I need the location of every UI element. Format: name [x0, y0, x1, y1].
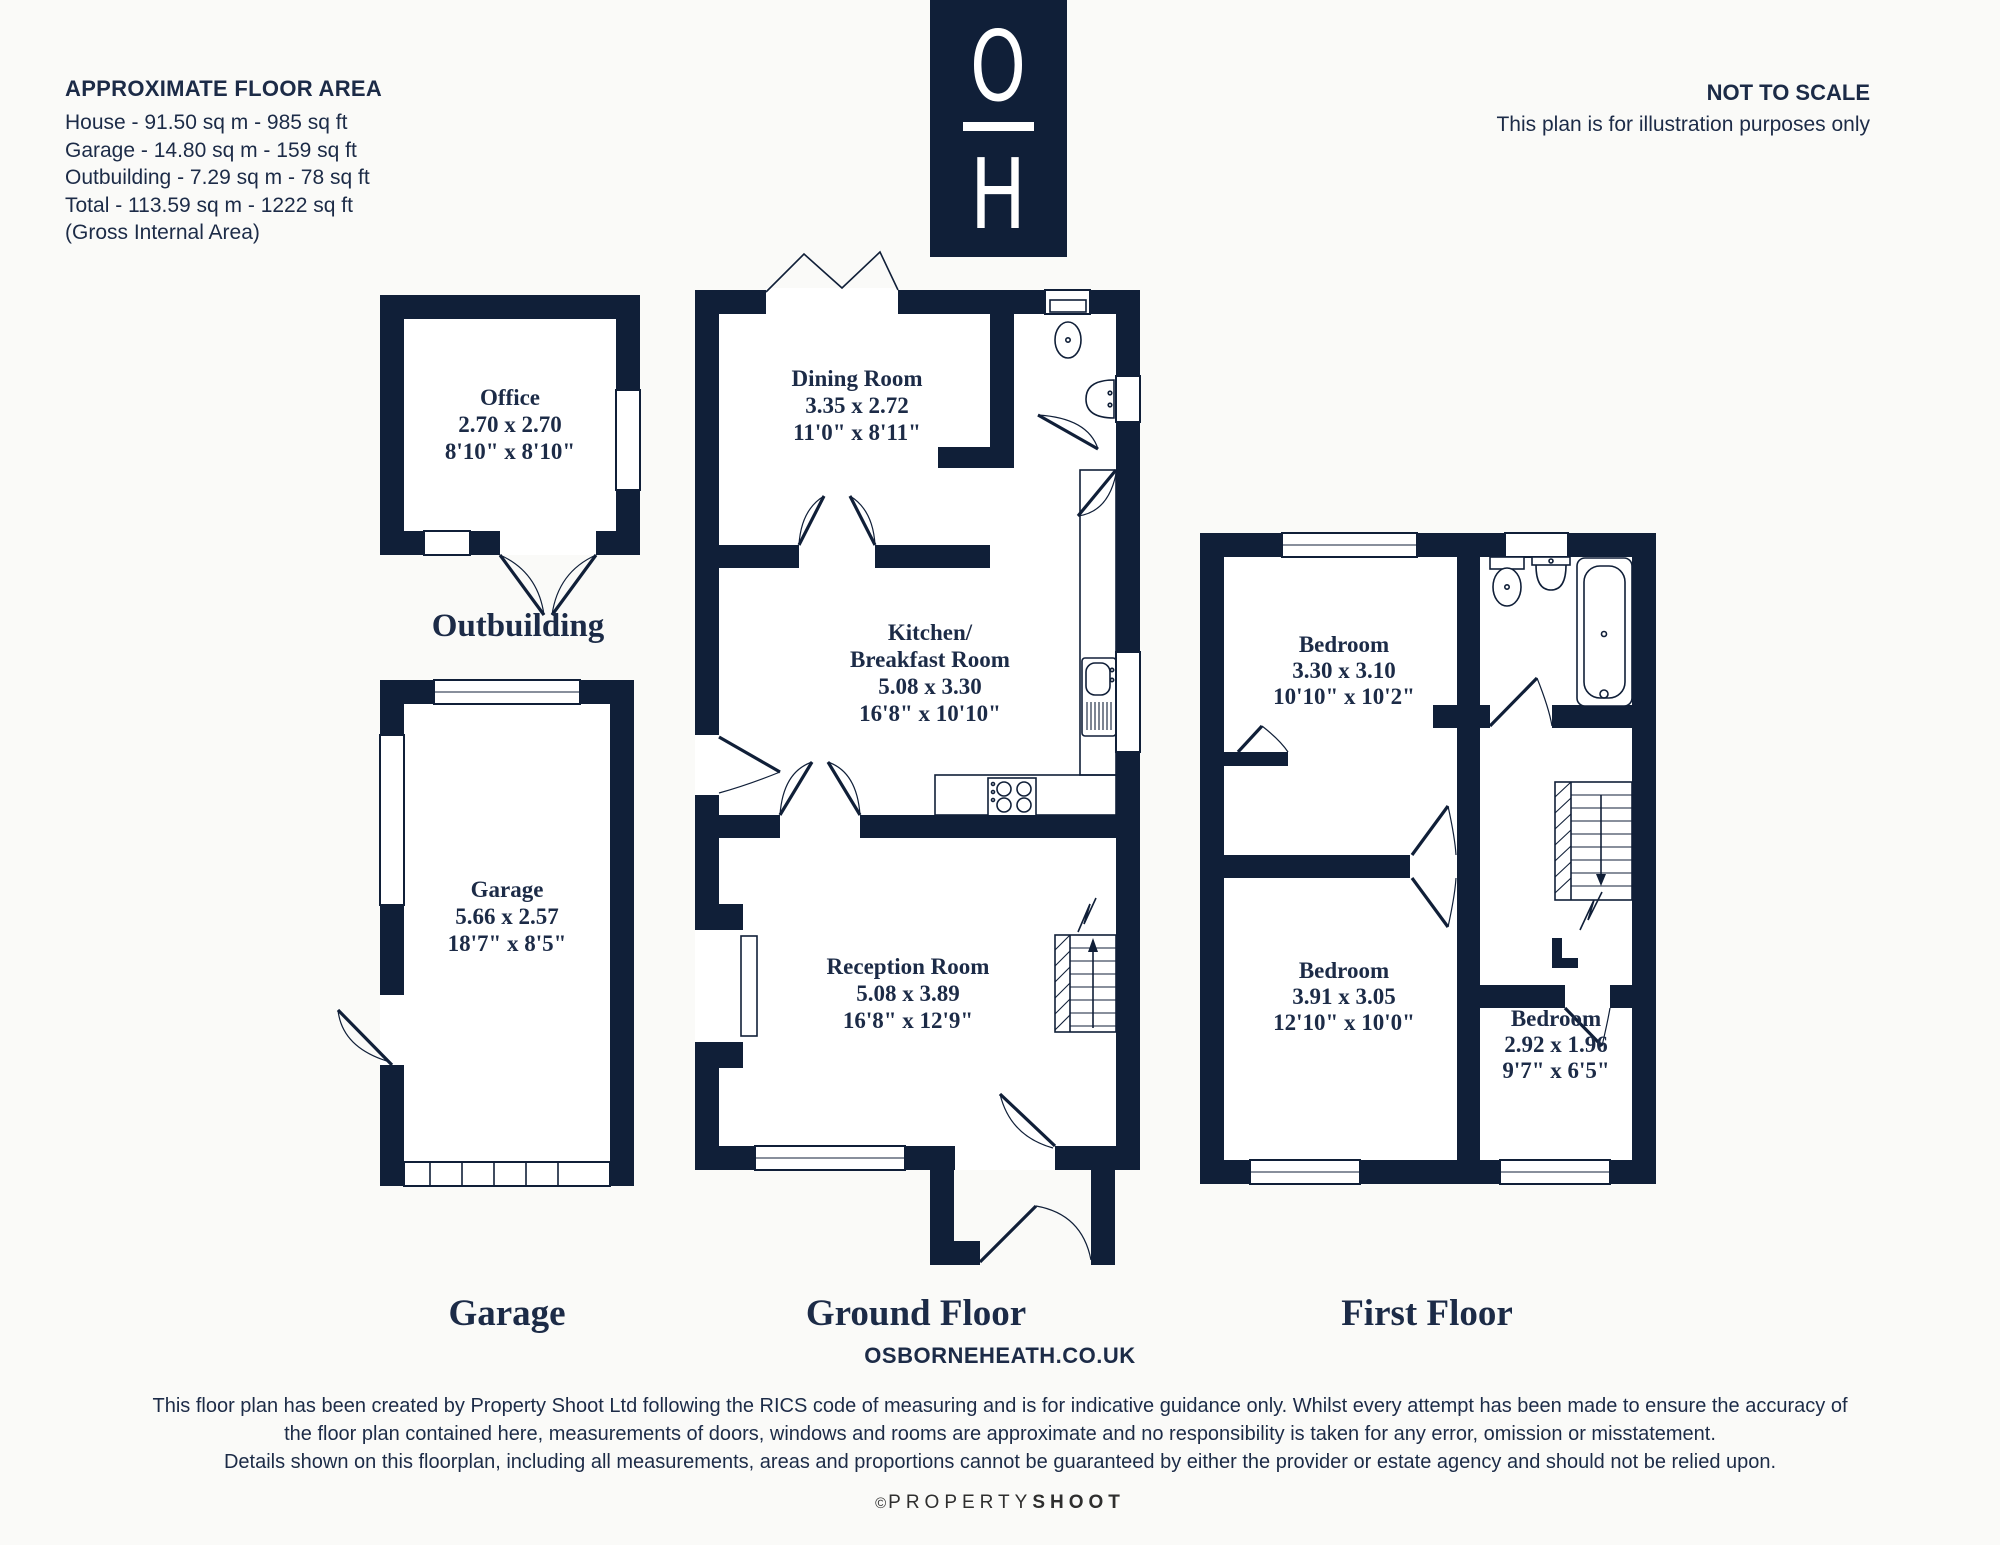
- kitchen-name1-label: Kitchen/: [888, 620, 973, 645]
- agency-logo-icon: O H: [930, 0, 1067, 257]
- dining-name-label: Dining Room: [792, 366, 923, 391]
- bathroom-toilet-icon: [1490, 557, 1524, 606]
- garage-door-icon: [404, 1162, 610, 1186]
- garage-plan: Garage 5.66 x 2.57 18'7" x 8'5" Garage: [338, 680, 634, 1334]
- office-imperial-label: 8'10" x 8'10": [445, 439, 575, 464]
- office-window-2: [424, 531, 470, 555]
- disclaimer-text: This floor plan has been created by Prop…: [0, 1392, 2000, 1476]
- dining-imperial-label: 11'0" x 8'11": [793, 420, 921, 445]
- ground-floor-plan: Dining Room 3.35 x 2.72 11'0" x 8'11" Ki…: [695, 252, 1140, 1368]
- garage-imperial-label: 18'7" x 8'5": [448, 931, 567, 956]
- wc-window-side: [1116, 376, 1140, 422]
- reception-name-label: Reception Room: [827, 954, 990, 979]
- garage-metric-label: 5.66 x 2.57: [455, 904, 559, 929]
- website-label: OSBORNEHEATH.CO.UK: [864, 1343, 1135, 1368]
- hob-icon: [988, 778, 1036, 816]
- office-french-doors-icon: [500, 555, 596, 615]
- logo-letter-h: H: [970, 138, 1026, 251]
- bedroom1-metric-label: 3.30 x 3.10: [1292, 658, 1396, 683]
- kitchen-name2-label: Breakfast Room: [850, 647, 1010, 672]
- bath-icon: [1577, 558, 1632, 706]
- floorplan-svg: O H Office 2.70 x 2.70 8'10" x 8'10" Out…: [0, 0, 2000, 1545]
- bedroom3-imperial-label: 9'7" x 6'5": [1502, 1058, 1609, 1083]
- outbuilding-plan: Office 2.70 x 2.70 8'10" x 8'10" Outbuil…: [380, 295, 640, 644]
- garage-floor-label: Garage: [448, 1293, 565, 1334]
- disclaimer-line-1: This floor plan has been created by Prop…: [0, 1392, 2000, 1420]
- kitchen-window: [1116, 652, 1140, 752]
- floorplan-page: APPROXIMATE FLOOR AREA House - 91.50 sq …: [0, 0, 2000, 1545]
- office-window: [616, 390, 640, 490]
- garage-window-left: [380, 735, 404, 905]
- first-floor-label: First Floor: [1341, 1293, 1513, 1334]
- bedroom1-name-label: Bedroom: [1299, 632, 1389, 657]
- ground-floor-label: Ground Floor: [806, 1293, 1026, 1334]
- credit-shoot-label: SHOOT: [1032, 1492, 1125, 1513]
- bedroom3-metric-label: 2.92 x 1.96: [1504, 1032, 1608, 1057]
- kitchen-imperial-label: 16'8" x 10'10": [859, 701, 1001, 726]
- office-metric-label: 2.70 x 2.70: [458, 412, 562, 437]
- copyright-icon: ©: [875, 1495, 888, 1512]
- bedroom2-metric-label: 3.91 x 3.05: [1292, 984, 1396, 1009]
- first-floor-plan: Bedroom 3.30 x 3.10 10'10" x 10'2" Bedro…: [1200, 533, 1656, 1334]
- bedroom3-name-label: Bedroom: [1511, 1006, 1601, 1031]
- entrance-porch: [930, 1170, 1115, 1265]
- reception-imperial-label: 16'8" x 12'9": [843, 1008, 973, 1033]
- bedroom2-imperial-label: 12'10" x 10'0": [1273, 1010, 1415, 1035]
- kitchen-metric-label: 5.08 x 3.30: [878, 674, 982, 699]
- dining-metric-label: 3.35 x 2.72: [805, 393, 909, 418]
- disclaimer-line-2: the floor plan contained here, measureme…: [0, 1420, 2000, 1448]
- dining-bay-window-icon: [766, 252, 898, 292]
- credit-property-label: PROPERTY: [888, 1492, 1032, 1513]
- bathroom-window: [1505, 533, 1568, 557]
- outbuilding-floor-label: Outbuilding: [432, 608, 605, 644]
- kitchen-sink-icon: [1082, 658, 1116, 736]
- office-name-label: Office: [480, 385, 540, 410]
- garage-name-label: Garage: [471, 877, 544, 902]
- bedroom2-name-label: Bedroom: [1299, 958, 1389, 983]
- logo-letter-o: O: [970, 10, 1026, 123]
- disclaimer-line-3: Details shown on this floorplan, includi…: [0, 1448, 2000, 1476]
- propertyshoot-credit: ©PROPERTYSHOOT: [0, 1492, 2000, 1514]
- reception-metric-label: 5.08 x 3.89: [856, 981, 960, 1006]
- bedroom1-imperial-label: 10'10" x 10'2": [1273, 684, 1415, 709]
